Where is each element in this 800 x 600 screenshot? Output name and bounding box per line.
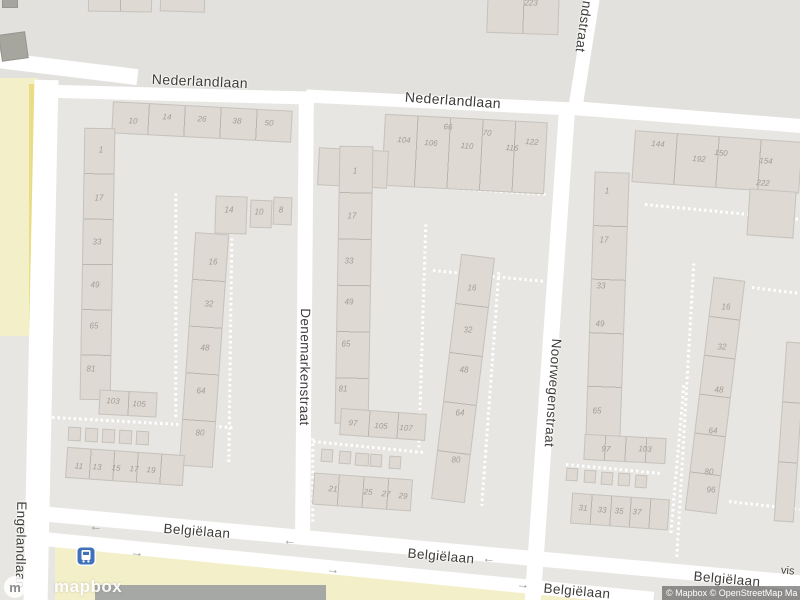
- street-label-denemarkenstraat: Denemarkenstraat: [297, 308, 313, 426]
- house-number-label: 106: [424, 138, 438, 148]
- house-number-label: 110: [460, 141, 473, 151]
- oneway-arrow: →: [130, 545, 144, 559]
- building: [585, 171, 629, 440]
- house-number-label: 32: [205, 300, 214, 309]
- house-number-label: 103: [638, 444, 652, 454]
- house-number-label: 48: [201, 344, 210, 353]
- building: [355, 453, 370, 467]
- house-number-label: 32: [464, 326, 473, 335]
- house-number-label: 16: [209, 258, 218, 267]
- house-number-label: 107: [399, 423, 413, 433]
- house-number-label: 17: [95, 194, 104, 203]
- building: [685, 277, 745, 514]
- building: [746, 188, 796, 238]
- house-number-label: 64: [709, 427, 718, 436]
- house-number-label: 97: [348, 418, 358, 428]
- house-number-label: 65: [342, 340, 351, 349]
- house-number-label: 17: [348, 212, 357, 221]
- house-number-label: 104: [397, 135, 411, 145]
- footpath-dotted: [752, 286, 800, 295]
- house-number-label: 16: [722, 303, 731, 312]
- building: [80, 128, 116, 400]
- building: [119, 430, 133, 445]
- oneway-arrow: →: [516, 577, 530, 591]
- building: [635, 475, 648, 489]
- house-number-label: 103: [106, 396, 120, 406]
- house-number-label: 11: [75, 461, 84, 471]
- footpath-dotted: [566, 463, 662, 475]
- building: [381, 114, 548, 194]
- house-number-label: 66: [443, 122, 453, 132]
- building: [160, 0, 206, 13]
- house-number-label: 27: [381, 489, 391, 499]
- building: [389, 456, 402, 470]
- house-number-label: 49: [345, 298, 354, 307]
- house-number-label: 1: [605, 187, 609, 196]
- house-number-label: 116: [505, 143, 518, 153]
- map-canvas[interactable]: 1014263850117334965811410816324864801031…: [0, 0, 800, 600]
- oneway-arrow: →: [326, 562, 340, 576]
- house-number-label: 16: [468, 284, 477, 293]
- house-number-label: 25: [363, 487, 373, 497]
- mapbox-logo-word: mapbox: [54, 577, 122, 597]
- roof-dark-bottom: [95, 585, 326, 600]
- building: [335, 146, 374, 425]
- house-number-label: 192: [692, 154, 706, 164]
- building: [601, 472, 614, 486]
- building: [68, 427, 82, 442]
- building: [0, 31, 29, 61]
- house-number-label: 33: [93, 238, 102, 247]
- house-number-label: 122: [525, 137, 539, 147]
- house-number-label: 33: [597, 282, 606, 291]
- house-number-label: 29: [398, 491, 408, 501]
- house-number-label: 96: [707, 486, 716, 495]
- oneway-arrow: ←: [89, 519, 103, 533]
- house-number-label: 144: [651, 139, 665, 149]
- house-number-label: 17: [600, 236, 609, 245]
- house-number-label: 105: [374, 421, 388, 431]
- house-number-label: 38: [232, 116, 241, 125]
- partial-poi-label: vis: [781, 565, 795, 578]
- house-number-label: 8: [279, 206, 283, 215]
- house-number-label: 49: [596, 320, 605, 329]
- house-number-label: 223: [524, 0, 537, 8]
- house-number-label: 14: [162, 112, 171, 121]
- house-number-label: 48: [715, 386, 724, 395]
- footpath-dotted: [676, 263, 696, 557]
- house-number-label: 17: [129, 464, 139, 474]
- house-number-label: 49: [91, 281, 100, 290]
- building: [88, 0, 152, 13]
- footpath-dotted: [175, 193, 178, 420]
- house-number-label: 1: [99, 146, 103, 155]
- building: [370, 454, 383, 468]
- house-number-label: 15: [111, 463, 121, 473]
- house-number-label: 1: [353, 167, 357, 176]
- house-number-label: 222: [756, 178, 770, 188]
- house-number-label: 33: [597, 505, 607, 515]
- building: [566, 468, 579, 482]
- house-number-label: 19: [146, 465, 156, 475]
- house-number-label: 50: [264, 118, 273, 127]
- house-number-label: 13: [92, 462, 102, 472]
- building: [85, 428, 99, 443]
- house-number-label: 65: [90, 322, 99, 331]
- house-number-label: 64: [456, 409, 465, 418]
- building: [136, 431, 150, 446]
- building: [584, 470, 597, 484]
- building: [214, 195, 247, 234]
- bus-stop-icon[interactable]: [76, 546, 96, 566]
- house-number-label: 81: [339, 385, 348, 394]
- house-number-label: 35: [614, 506, 624, 516]
- house-number-label: 33: [345, 257, 354, 266]
- building: [321, 449, 334, 463]
- house-number-label: 70: [482, 128, 492, 138]
- house-number-label: 80: [196, 429, 205, 438]
- house-number-label: 26: [197, 114, 206, 123]
- house-number-label: 14: [225, 206, 234, 215]
- house-number-label: 80: [452, 456, 461, 465]
- mapbox-logo-mark-icon: m: [4, 576, 26, 598]
- building: [102, 429, 116, 444]
- house-number-label: 65: [593, 407, 602, 416]
- building: [339, 451, 352, 465]
- house-number-label: 21: [328, 484, 338, 494]
- house-number-label: 80: [705, 468, 714, 477]
- house-number-label: 32: [718, 343, 727, 352]
- building: [2, 0, 18, 8]
- house-number-label: 150: [714, 148, 728, 158]
- map-attribution[interactable]: © Mapbox © OpenStreetMap Ma: [662, 586, 800, 600]
- mapbox-logo[interactable]: m mapbox: [4, 576, 122, 598]
- building: [583, 434, 666, 464]
- house-number-label: 64: [197, 387, 206, 396]
- house-number-label: 48: [460, 366, 469, 375]
- house-number-label: 97: [601, 444, 610, 453]
- house-number-label: 154: [759, 156, 773, 166]
- house-number-label: 81: [87, 365, 96, 374]
- house-number-label: 31: [578, 503, 588, 513]
- house-number-label: 10: [128, 116, 137, 125]
- house-number-label: 10: [255, 208, 264, 217]
- house-number-label: 105: [132, 399, 146, 409]
- oneway-arrow: ←: [482, 551, 496, 565]
- building: [618, 473, 631, 487]
- building: [774, 342, 800, 523]
- oneway-arrow: ←: [283, 533, 297, 547]
- house-number-label: 37: [632, 507, 642, 517]
- building: [486, 0, 559, 35]
